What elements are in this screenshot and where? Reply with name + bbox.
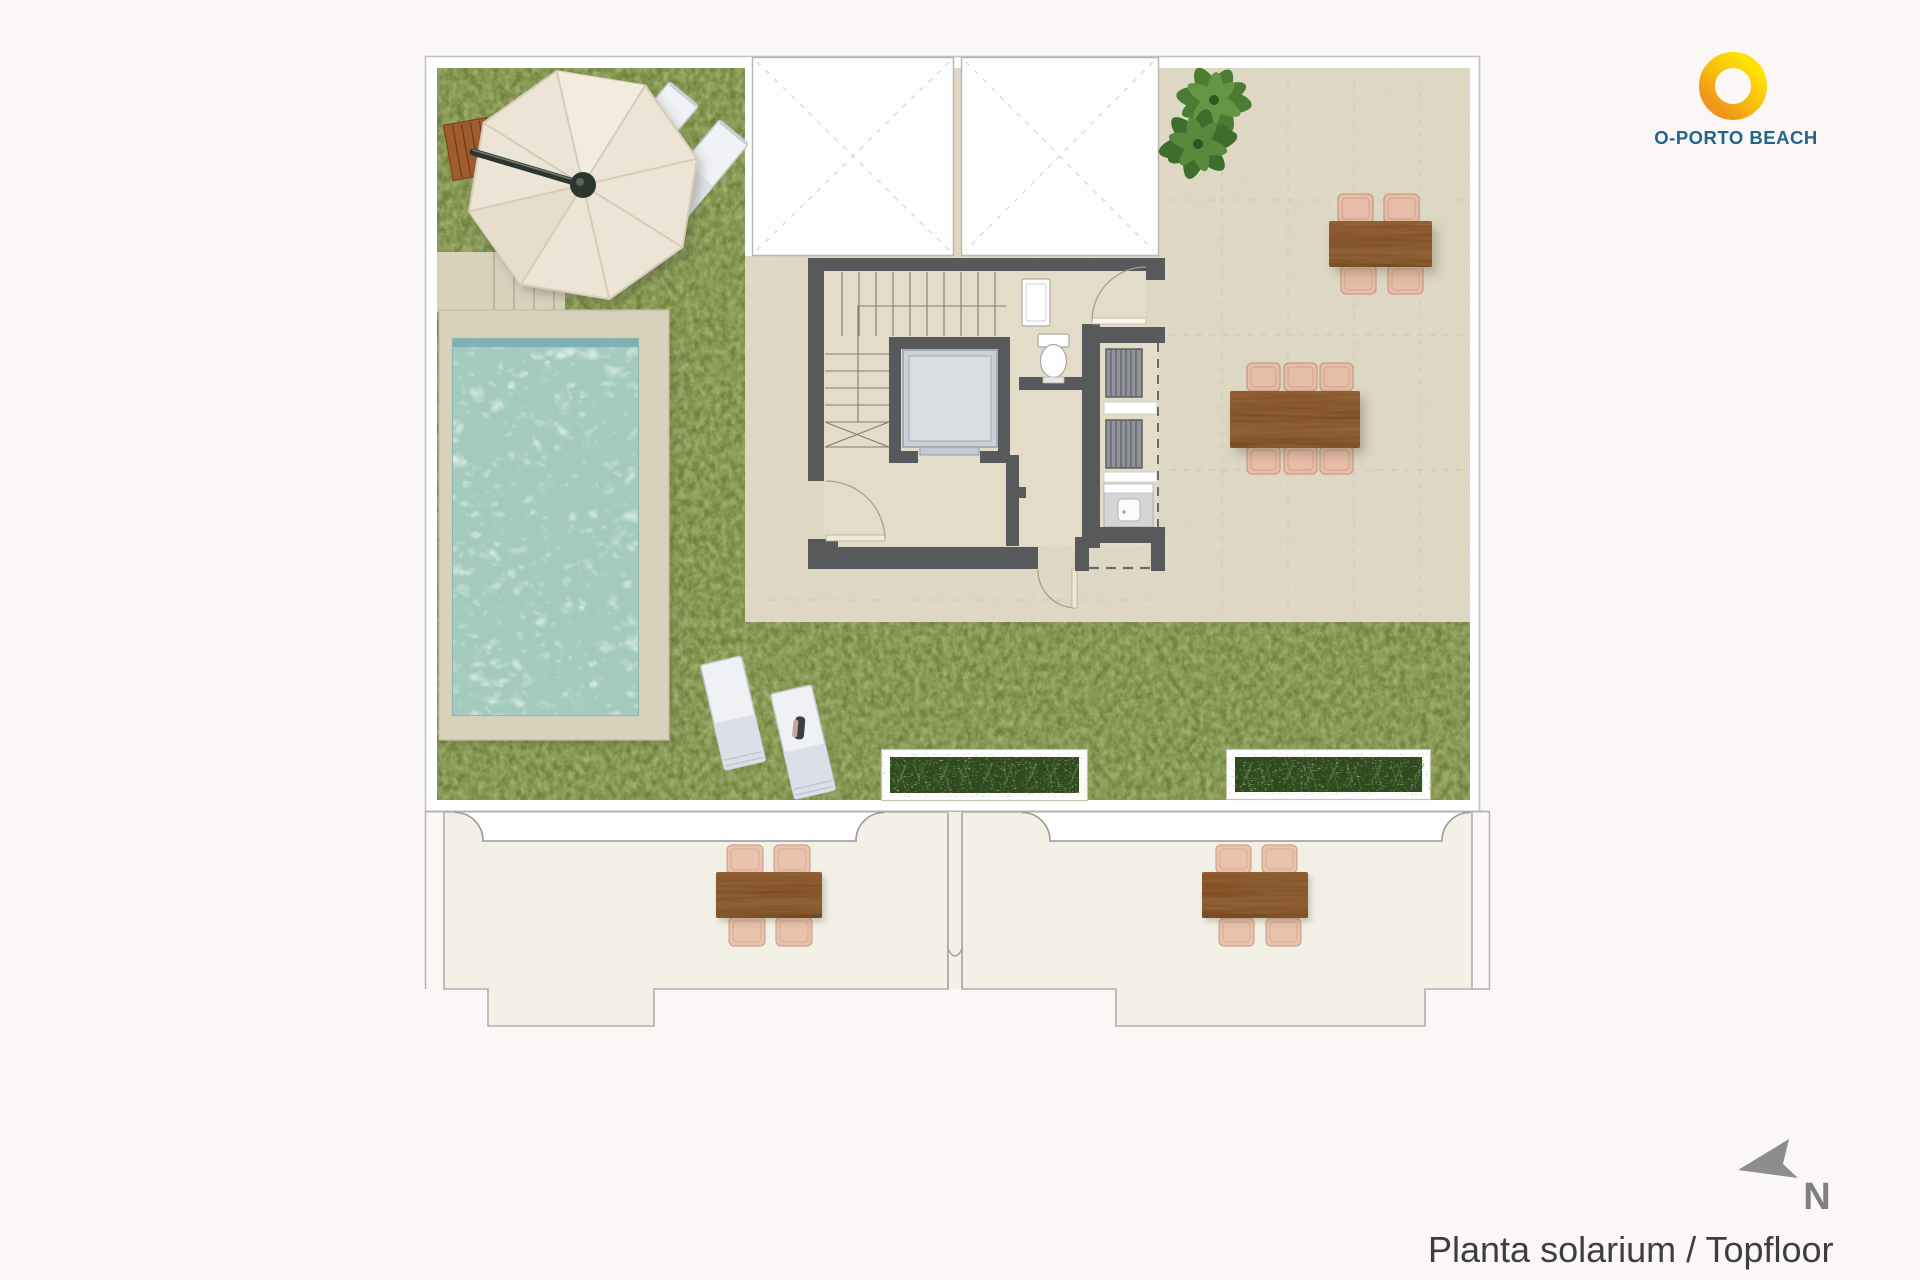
svg-text:O-PORTO BEACH: O-PORTO BEACH (1654, 127, 1817, 148)
svg-text:Planta solarium / Topfloor: Planta solarium / Topfloor (1428, 1229, 1834, 1270)
svg-text:N: N (1803, 1176, 1830, 1218)
